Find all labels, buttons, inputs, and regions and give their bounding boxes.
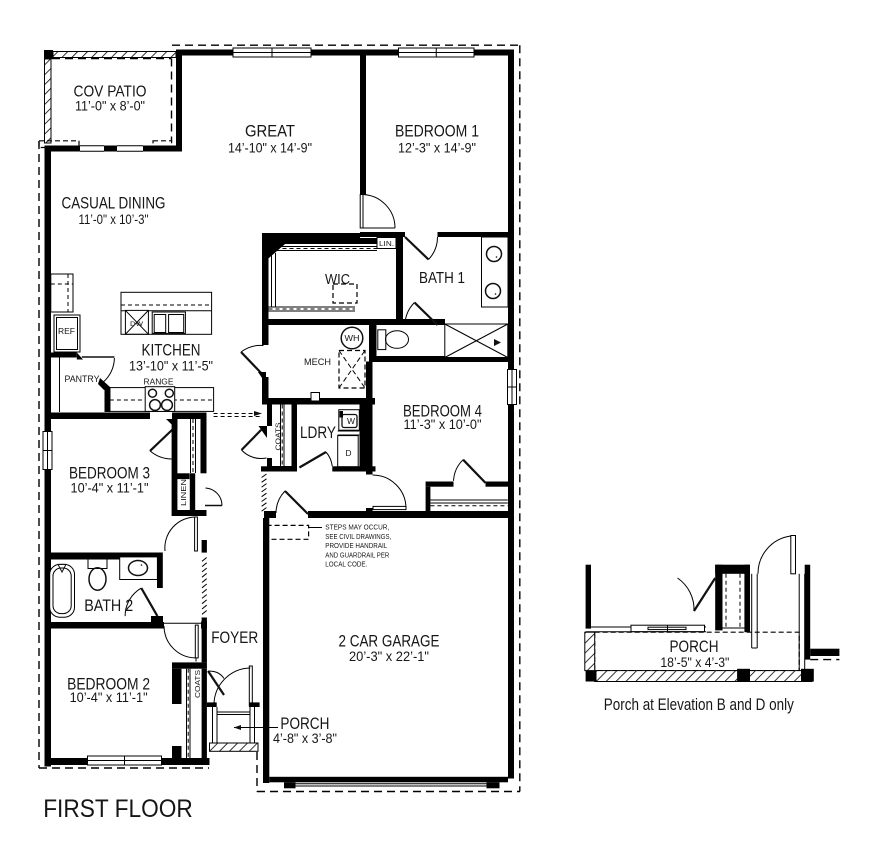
svg-text:PANTRY: PANTRY — [65, 374, 101, 385]
svg-text:BEDROOM 1: BEDROOM 1 — [395, 122, 479, 141]
svg-text:LINEN: LINEN — [179, 479, 188, 506]
svg-text:13’-10" x 11’-5": 13’-10" x 11’-5" — [129, 358, 213, 374]
svg-text:D: D — [346, 449, 352, 458]
svg-text:LDRY: LDRY — [300, 423, 336, 442]
svg-text:CASUAL DINING: CASUAL DINING — [62, 194, 166, 213]
svg-text:10’-4" x 11’-1": 10’-4" x 11’-1" — [70, 689, 148, 705]
svg-text:4’-8" x 3’-8": 4’-8" x 3’-8" — [273, 730, 337, 746]
svg-text:MECH: MECH — [304, 357, 331, 367]
svg-text:12’-3" x 14’-9": 12’-3" x 14’-9" — [398, 140, 476, 156]
svg-text:18’-5" x 4’-3": 18’-5" x 4’-3" — [660, 654, 729, 670]
svg-text:RANGE: RANGE — [144, 378, 174, 387]
svg-text:14’-10" x 14’-9": 14’-10" x 14’-9" — [228, 140, 312, 156]
svg-text:FIRST FLOOR: FIRST FLOOR — [43, 795, 193, 823]
svg-text:STEPS MAY OCCUR,: STEPS MAY OCCUR, — [325, 523, 389, 532]
svg-text:REF: REF — [58, 327, 75, 336]
svg-text:20’-3" x 22’-1": 20’-3" x 22’-1" — [349, 648, 429, 664]
svg-text:LIN.: LIN. — [379, 241, 394, 248]
svg-text:LOCAL CODE.: LOCAL CODE. — [325, 560, 367, 569]
svg-text:10’-4" x 11’-1": 10’-4" x 11’-1" — [71, 480, 149, 496]
svg-text:11’-0" x 8’-0": 11’-0" x 8’-0" — [75, 98, 145, 114]
svg-text:WH: WH — [345, 334, 360, 343]
svg-text:COATS: COATS — [274, 423, 283, 451]
svg-text:FOYER: FOYER — [211, 628, 258, 647]
svg-text:BATH 1: BATH 1 — [419, 270, 465, 287]
svg-text:COATS: COATS — [193, 670, 202, 698]
svg-text:11’-0" x 10’-3": 11’-0" x 10’-3" — [79, 211, 149, 227]
svg-text:AND GUARDRAIL PER: AND GUARDRAIL PER — [325, 550, 389, 559]
svg-text:DW: DW — [130, 321, 144, 328]
svg-text:GREAT: GREAT — [245, 122, 295, 141]
svg-text:BATH 2: BATH 2 — [84, 596, 133, 615]
svg-text:PROVIDE HANDRAIL: PROVIDE HANDRAIL — [325, 541, 387, 550]
svg-text:SEE CIVIL DRAWINGS,: SEE CIVIL DRAWINGS, — [325, 532, 391, 541]
svg-text:11’-3" x 10’-0": 11’-3" x 10’-0" — [404, 416, 482, 432]
svg-text:W: W — [347, 417, 355, 426]
svg-text:Porch at Elevation B and D onl: Porch at Elevation B and D only — [604, 695, 794, 714]
svg-text:WIC: WIC — [325, 271, 350, 288]
